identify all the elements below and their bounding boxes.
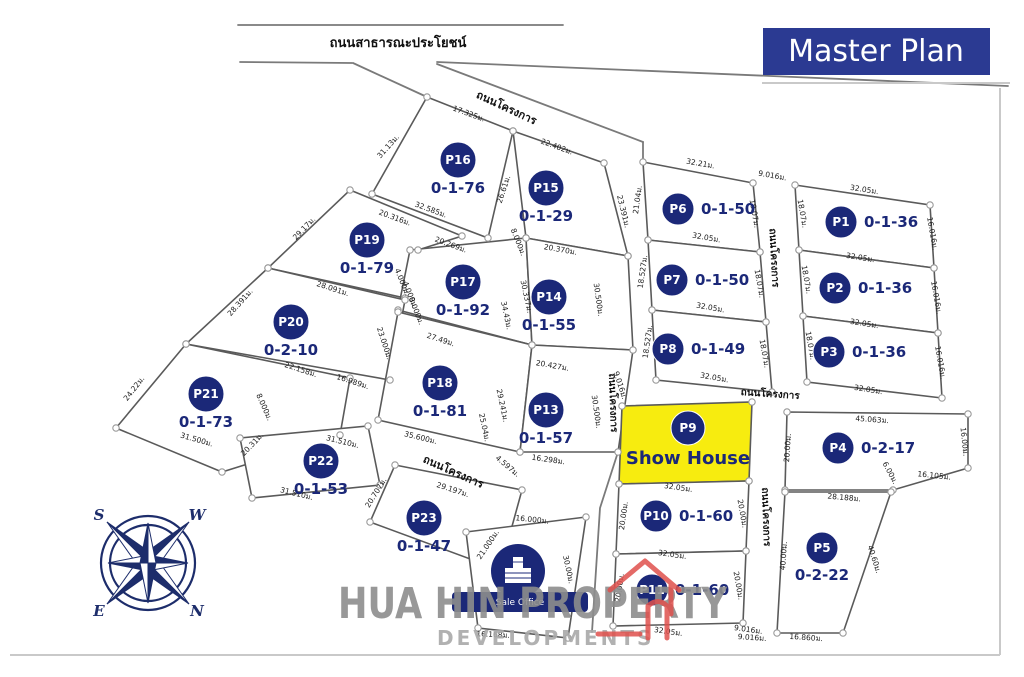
plot-id: P2 xyxy=(826,281,843,295)
measurement-label: 9.016ม. xyxy=(757,169,787,183)
master-plan-page: 17.325ม.22.402ม.31.13ม.26.61ม.23.391ม.32… xyxy=(0,0,1024,677)
vertex-dot xyxy=(804,379,810,385)
vertex-dot xyxy=(523,235,529,241)
plot-area: 0-1-50 xyxy=(695,271,749,289)
vertex-dot xyxy=(407,247,413,253)
vertex-dot xyxy=(375,417,381,423)
vertex-dot xyxy=(113,425,119,431)
vertex-dot xyxy=(249,495,255,501)
compass-east: E xyxy=(92,602,105,620)
plot-id: P19 xyxy=(354,233,380,247)
measurement-label: 18.527ม. xyxy=(636,254,650,289)
plot-id: P1 xyxy=(832,215,849,229)
plot-area: 0-1-36 xyxy=(852,343,906,361)
plot-id: P7 xyxy=(663,273,680,287)
site-plan-drawing: 17.325ม.22.402ม.31.13ม.26.61ม.23.391ม.32… xyxy=(0,0,1024,677)
compass-north: N xyxy=(189,602,205,620)
master-plan-text: Master Plan xyxy=(788,34,964,69)
vertex-dot xyxy=(757,249,763,255)
plot-id: P16 xyxy=(445,153,471,167)
vertex-dot xyxy=(347,187,353,193)
vertex-dot xyxy=(653,377,659,383)
plot-area: 0-1-53 xyxy=(294,480,348,498)
vertex-dot xyxy=(939,395,945,401)
vertex-dot xyxy=(625,253,631,259)
vertex-dot xyxy=(367,519,373,525)
vertex-dot xyxy=(583,514,589,520)
plot-id: P22 xyxy=(308,454,334,468)
plot-area: 0-1-73 xyxy=(179,413,233,431)
plot-id: P23 xyxy=(411,511,437,525)
vertex-dot xyxy=(750,180,756,186)
road-name-label: ถนนโครงการ xyxy=(759,487,774,547)
vertex-dot xyxy=(519,487,525,493)
plot-id: P14 xyxy=(536,290,562,304)
plot-id: P4 xyxy=(829,441,846,455)
plot-area: 0-1-57 xyxy=(519,429,573,447)
vertex-dot xyxy=(645,237,651,243)
measurement-label: 32.21ม. xyxy=(685,157,715,171)
plot-area: 0-1-92 xyxy=(436,301,490,319)
vertex-dot xyxy=(616,481,622,487)
vertex-dot xyxy=(965,465,971,471)
measurement-label: 4.597ม. xyxy=(494,453,522,478)
vertex-dot xyxy=(219,469,225,475)
plot-id: P21 xyxy=(193,387,219,401)
vertex-dot xyxy=(613,551,619,557)
vertex-dot xyxy=(424,94,430,100)
plot-area: 0-1-79 xyxy=(340,259,394,277)
plot-area: 0-1-55 xyxy=(522,316,576,334)
plot-area: 0-1-76 xyxy=(431,179,485,197)
vertex-dot xyxy=(459,233,465,239)
vertex-dot xyxy=(601,160,607,166)
plot-area: 0-1-81 xyxy=(413,402,467,420)
vertex-dot xyxy=(763,319,769,325)
plot-area: 0-1-29 xyxy=(519,207,573,225)
vertex-dot xyxy=(619,403,625,409)
vertex-dot xyxy=(630,347,636,353)
plot-area: 0-2-10 xyxy=(264,341,318,359)
plot-id: P20 xyxy=(278,315,304,329)
vertex-dot xyxy=(395,309,401,315)
plot-area: 0-1-36 xyxy=(858,279,912,297)
plot-id: P13 xyxy=(533,403,559,417)
vertex-dot xyxy=(782,489,788,495)
vertex-dot xyxy=(935,330,941,336)
measurement-label: 16.000ม. xyxy=(515,513,549,525)
plot-area: 0-1-47 xyxy=(397,537,451,555)
vertex-dot xyxy=(743,548,749,554)
plot-area: 0-2-22 xyxy=(795,566,849,584)
vertex-dot xyxy=(517,449,523,455)
vertex-dot xyxy=(927,202,933,208)
vertex-dot xyxy=(965,411,971,417)
vertex-dot xyxy=(369,191,375,197)
plot-id: P18 xyxy=(427,376,453,390)
master-plan-title: Master Plan xyxy=(762,28,1010,83)
vertex-dot xyxy=(649,307,655,313)
measurement-label: 16.298ม. xyxy=(531,453,566,467)
vertex-dot xyxy=(183,341,189,347)
vertex-dot xyxy=(774,630,780,636)
road-name-label: ถนนสาธารณะประโยชน์ xyxy=(330,34,467,51)
plot-id: P17 xyxy=(450,275,476,289)
show-house-label: Show House xyxy=(626,448,750,469)
vertex-dot xyxy=(888,489,894,495)
vertex-dot xyxy=(485,235,491,241)
plot-id: P15 xyxy=(533,181,559,195)
vertex-dot xyxy=(415,247,421,253)
vertex-dot xyxy=(510,128,516,134)
vertex-dot xyxy=(529,342,535,348)
vertex-dot xyxy=(237,435,243,441)
plot-id: P5 xyxy=(813,541,830,555)
vertex-dot xyxy=(463,529,469,535)
vertex-dot xyxy=(365,423,371,429)
compass-rose: S W E N xyxy=(92,506,207,620)
vertex-dot xyxy=(800,313,806,319)
plot-area: 0-1-50 xyxy=(701,200,755,218)
plot-id: P8 xyxy=(659,342,676,356)
vertex-dot xyxy=(387,377,393,383)
vertex-dot xyxy=(931,265,937,271)
vertex-dot xyxy=(749,399,755,405)
plot-area: 0-1-60 xyxy=(679,507,733,525)
plot-id: P3 xyxy=(820,345,837,359)
plot-area: 0-1-36 xyxy=(864,213,918,231)
measurement-label: 9.016ม. xyxy=(737,632,766,643)
vertex-dot xyxy=(746,478,752,484)
vertex-dot xyxy=(784,409,790,415)
vertex-dot xyxy=(796,247,802,253)
vertex-dot xyxy=(792,182,798,188)
vertex-dot xyxy=(615,449,621,455)
plot-id: P6 xyxy=(669,202,686,216)
plot-id: P9 xyxy=(679,421,696,435)
watermark-line2: DEVELOPMENTS xyxy=(437,626,654,650)
compass-west: W xyxy=(189,506,208,524)
compass-south: S xyxy=(94,506,105,524)
vertex-dot xyxy=(392,462,398,468)
measurement-label: 21.04ม. xyxy=(631,185,644,215)
vertex-dot xyxy=(265,265,271,271)
vertex-dot xyxy=(640,159,646,165)
plot-id: P10 xyxy=(643,509,669,523)
plot-area: 0-1-49 xyxy=(691,340,745,358)
measurement-label: 16.860ม. xyxy=(789,632,823,643)
road-name-label: ถนนโครงการ xyxy=(766,228,782,288)
plot-area: 0-2-17 xyxy=(861,439,915,457)
vertex-dot xyxy=(840,630,846,636)
